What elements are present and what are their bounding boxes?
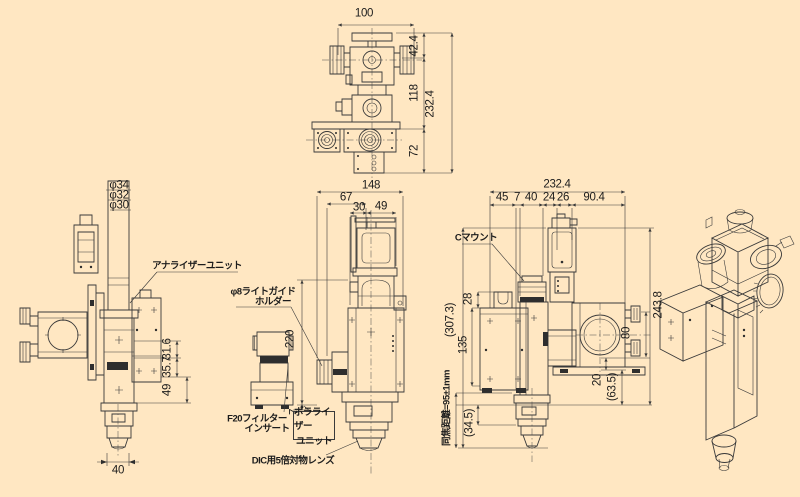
label-polarizer-unit-box: ポラライザー ユニット <box>293 411 335 440</box>
dim-topview-overall-height: 232.4 <box>425 90 437 117</box>
dim-right-body-height: 135 <box>458 336 470 354</box>
label-analyzer-unit: アナライザーユニット <box>152 261 242 271</box>
dim-topview-overall-width: 100 <box>355 8 373 20</box>
left-side-view <box>20 181 238 466</box>
dim-topview-upper-height: 42.4 <box>409 35 421 56</box>
dim-left-dia-inner: φ30 <box>109 200 128 212</box>
technical-drawing-lines <box>0 0 800 497</box>
dim-center-left-width: 67 <box>340 192 352 204</box>
dim-right-seg3: 40 <box>525 192 537 204</box>
dim-right-seg2: 7 <box>514 192 520 204</box>
isometric-view <box>660 210 794 471</box>
dim-right-overall-width: 232.4 <box>543 179 570 191</box>
dim-right-port-height: 80 <box>621 327 633 339</box>
dim-center-overall-width: 148 <box>362 180 380 192</box>
dim-left-seg-mid: 35.7 <box>162 356 174 377</box>
dim-right-seg4: 24 <box>543 192 555 204</box>
dim-left-bottom-width: 40 <box>112 465 124 477</box>
label-polarizer-unit-line2: ユニット <box>296 433 332 447</box>
label-polarizer-unit-line1: ポラライザー <box>294 404 334 432</box>
dim-right-plate-height: 20 <box>592 374 604 386</box>
dim-topview-middle-height: 118 <box>409 84 421 101</box>
dim-right-seg6: 90.4 <box>583 192 604 204</box>
dim-center-height: 220 <box>285 330 297 348</box>
dim-center-seg-b: 49 <box>375 201 387 213</box>
dim-right-bracket-height: 28 <box>463 293 475 305</box>
dim-right-overall-height: (307.3) <box>445 303 457 337</box>
dim-center-seg-a: 30 <box>353 202 365 214</box>
label-c-mount: Cマウント <box>455 233 497 243</box>
dim-right-parfocal-distance: 同焦距離=95±1mm <box>442 370 452 446</box>
label-light-guide-holder-line2: ホルダー <box>255 297 291 307</box>
dim-right-lower-offset: (34.5) <box>464 409 476 437</box>
dim-left-seg-lower: 49 <box>162 384 174 396</box>
dim-right-seg1: 45 <box>496 192 508 204</box>
dim-right-seg5: 26 <box>557 192 569 204</box>
dim-topview-lower-height: 72 <box>409 145 421 157</box>
label-dic-objective-lens: DIC用5倍対物レンズ <box>252 456 334 466</box>
technical-drawing-page: 100 42.4 118 72 232.4 φ34 φ32 φ30 アナライザー… <box>0 0 800 497</box>
label-filter-insert-line2: インサート <box>244 424 289 434</box>
dim-right-right-height: 243.8 <box>653 291 665 318</box>
dim-right-foot-height: (63.5) <box>607 373 619 401</box>
